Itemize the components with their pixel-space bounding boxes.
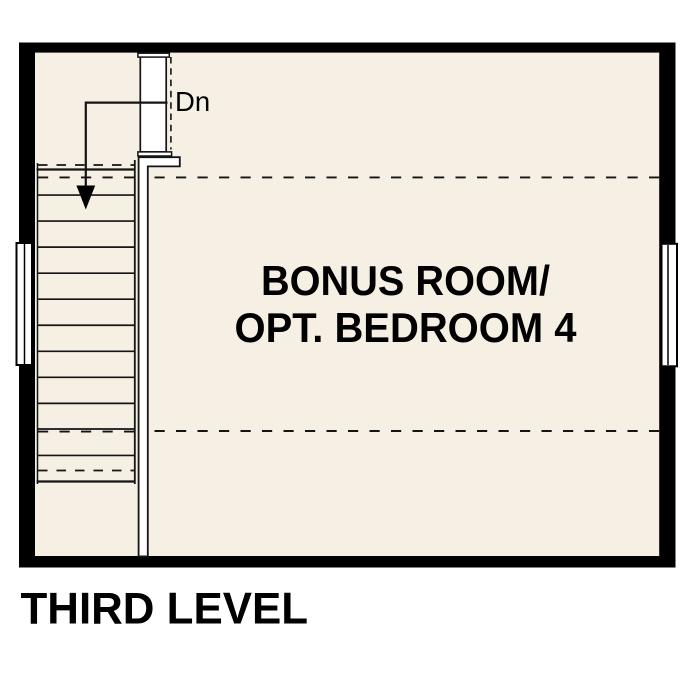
svg-text:THIRD LEVEL: THIRD LEVEL [21, 585, 309, 634]
svg-text:Dn: Dn [175, 86, 210, 117]
svg-text:OPT. BEDROOM 4: OPT. BEDROOM 4 [235, 305, 577, 351]
svg-text:BONUS ROOM/: BONUS ROOM/ [261, 258, 550, 304]
